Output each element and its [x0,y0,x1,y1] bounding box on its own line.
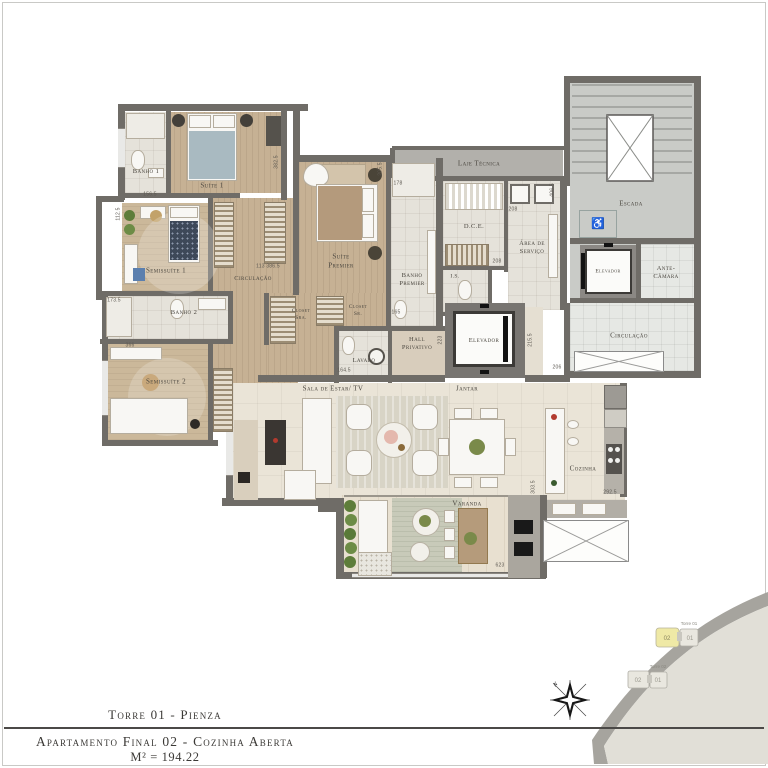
plant [124,210,135,221]
keyplan-unit02b-label: 02 [635,678,642,684]
dining-chair [505,438,516,456]
decor-plant [419,515,431,527]
wall [118,104,308,111]
keyplan-unit01b-label: 01 [655,678,662,684]
divider [4,727,764,729]
dimension: 366 [126,344,135,349]
outdoor-sofa [358,500,388,556]
burner [608,458,613,463]
decor-dot [398,444,405,451]
outdoor-chair [444,510,455,523]
dimension: 215.5 [529,333,534,347]
floorplan-sheet: ♿ [0,0,768,768]
ottoman [133,268,145,281]
area-value: M² = 194.22 [0,750,330,765]
dining-chair [454,477,472,488]
wardrobe [213,368,233,432]
keyplan-tower2: Torre 02 02 01 [628,664,667,688]
nightstand [172,114,185,127]
sofa-bed [110,398,188,434]
grill-counter [508,495,540,578]
wall [386,158,391,330]
chaise [284,470,316,500]
cabinet [548,214,558,278]
dimension: 178 [394,182,403,187]
nightstand [240,114,253,127]
wall [334,326,392,331]
decor-plate [384,430,398,444]
elevator-cab [585,249,632,294]
pouf [142,374,159,391]
round-table [410,542,430,562]
plant [344,556,356,568]
stool [567,420,579,429]
dimension: 112.5 [117,207,122,220]
dimension: 292.5 [603,491,617,496]
burner [608,447,613,452]
wall [118,193,240,198]
wall [564,371,701,378]
elevator-door-tick [480,304,489,308]
plant [345,514,357,526]
sink [148,168,164,178]
keyplan-core [647,675,652,683]
wardrobe [316,296,344,326]
keyplan-tower1: Torre 01 02 01 [656,621,698,647]
toilet [458,280,472,300]
island-sink [551,414,557,420]
dimension: 406.5 [551,183,556,197]
armchair [412,450,438,476]
cabinet [604,409,627,428]
decor-dot [273,438,278,443]
dining-chair [438,438,449,456]
wall [570,298,694,303]
grill [514,520,533,534]
tower-title: Torre 01 - Pienza [0,707,330,723]
elevator-door [581,253,585,289]
vanity [198,298,226,310]
sink [582,503,606,515]
speaker [238,472,250,483]
dimension: 113 386.5 [256,265,280,270]
sink [368,348,385,365]
wall [564,76,570,186]
dimension: 205.5 [379,162,384,176]
wall [334,326,339,383]
keyplan-tower2-label: Torre 02 [650,664,667,669]
compass-north-label: N [552,681,560,689]
dimension: 165 [392,311,401,316]
bed-blanket [318,186,362,240]
dimension: 382.5 [275,155,280,169]
vanity [427,230,436,294]
dimension: 208 [493,260,502,265]
wall [392,146,564,150]
pillow [213,115,235,128]
dimension: 164.5 [337,369,351,374]
armchair [346,450,372,476]
bed-blanket [170,221,198,260]
wall [96,196,102,300]
toilet [170,299,184,319]
window [118,128,125,168]
dining-chair [480,477,498,488]
keyplan-unit02-label: 02 [664,636,671,642]
burner [615,458,620,463]
outdoor-chair [444,528,455,541]
armchair [412,404,438,430]
sink [552,503,576,515]
wall [258,375,334,382]
wall [570,238,694,244]
wardrobe [214,202,234,268]
dimension: 173.5 [107,299,121,304]
desk [110,347,162,360]
dining-chair [454,408,472,419]
plant [124,224,135,235]
hatched-opening [543,520,629,562]
centerpiece [469,439,485,455]
wall [388,331,392,383]
compass-rose-icon: N [548,678,592,722]
wall [264,293,269,345]
wall [293,104,300,162]
hall-extension [268,345,334,377]
pillow [170,207,198,218]
wall [390,326,445,331]
wall [504,180,508,272]
wall [293,158,299,295]
tv-dresser [266,116,281,146]
burner [615,447,620,452]
wall [166,110,171,198]
dimension: 623 [496,564,505,569]
plant [345,542,357,554]
pillow [189,115,211,128]
wall [281,104,287,200]
keyplan-tower1-label: Torre 01 [681,621,698,626]
elevator-door [503,316,508,362]
bed-blanket [189,131,235,179]
armchair [346,404,372,430]
site-keyplan: Torre 01 02 01 Torre 02 02 01 [592,588,768,764]
pillow [362,188,374,212]
plant [344,500,356,512]
wall [636,243,641,303]
keyplan-unit01-label: 01 [687,636,694,642]
dimension: 303.5 [532,480,537,494]
dimension: 206 [553,366,562,371]
side-table [190,419,200,429]
single-bed [445,183,503,210]
hatched-opening [574,351,664,372]
wall [564,76,700,83]
elevator-door-tick [604,243,613,247]
wardrobe [270,296,296,344]
toilet [131,150,145,170]
wardrobe [264,202,286,264]
cooktop-outdoor [514,542,533,556]
sideboard [234,420,258,500]
wall [102,440,218,446]
elevator-door-tick [480,370,489,374]
stair-void [606,114,654,182]
shelf-unit [445,244,489,266]
wall [694,76,701,378]
wall [336,498,344,578]
decor-dot [551,480,557,486]
dimension: 156.5 [143,193,157,198]
dimension: 208 [509,208,518,213]
wall [440,266,505,270]
dimension: 223 [439,336,444,345]
wall [436,158,443,330]
wall [560,176,567,310]
centerpiece [464,532,477,545]
window [102,360,108,416]
washer [510,184,530,204]
toilet [342,336,355,355]
pillow [362,214,374,238]
accessible-icon: ♿ [579,210,617,238]
wall [228,291,233,344]
wall [564,303,570,373]
fridge [604,385,627,409]
outdoor-cushion [358,552,392,576]
dining-chair [480,408,498,419]
shower [126,113,165,139]
nightstand [368,246,382,260]
outdoor-chair [444,546,455,559]
keyplan-core [677,632,682,641]
apartment-title: Apartamento Final 02 - Cozinha Aberta [0,734,330,750]
stool [567,437,579,446]
plant [344,528,356,540]
room-ante-camara [640,245,694,300]
